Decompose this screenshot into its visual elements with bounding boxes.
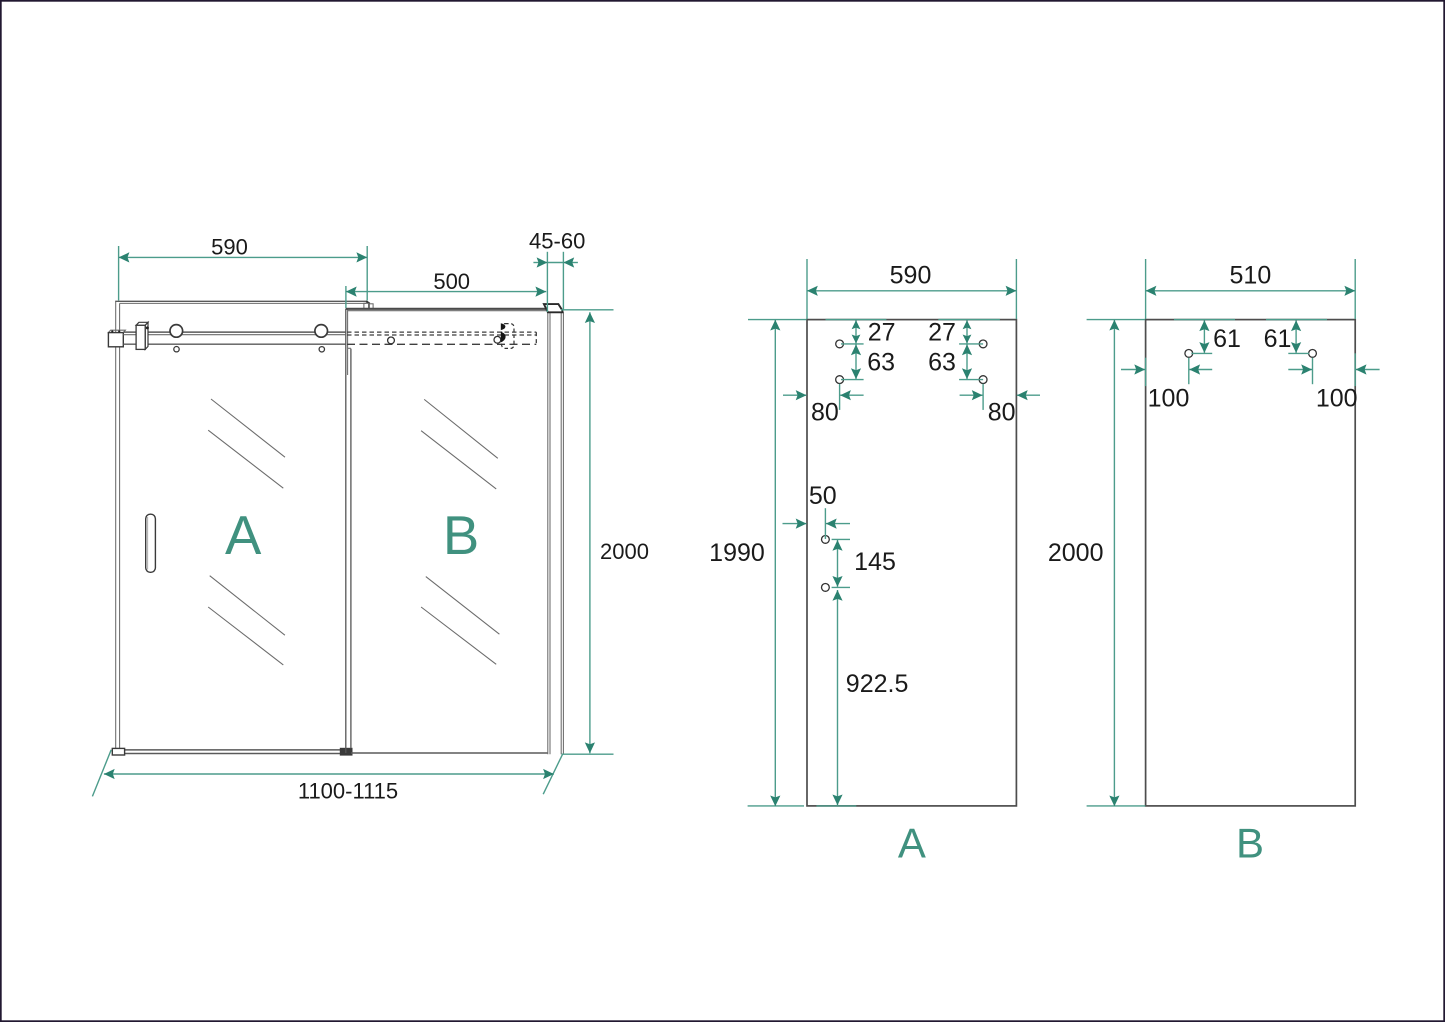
- svg-text:61: 61: [1264, 325, 1292, 353]
- svg-text:B: B: [443, 505, 479, 566]
- svg-text:590: 590: [890, 262, 932, 290]
- svg-text:63: 63: [867, 348, 895, 376]
- svg-text:500: 500: [433, 269, 470, 294]
- svg-text:45-60: 45-60: [529, 228, 585, 253]
- svg-text:1990: 1990: [709, 539, 765, 567]
- svg-text:100: 100: [1316, 385, 1358, 413]
- svg-text:63: 63: [928, 348, 956, 376]
- svg-text:590: 590: [211, 234, 248, 259]
- svg-text:61: 61: [1213, 325, 1241, 353]
- svg-text:27: 27: [928, 318, 956, 346]
- svg-text:1100-1115: 1100-1115: [298, 778, 398, 803]
- svg-text:100: 100: [1148, 385, 1190, 413]
- svg-text:145: 145: [854, 548, 896, 576]
- svg-text:A: A: [225, 505, 262, 566]
- svg-text:80: 80: [811, 399, 839, 427]
- svg-text:B: B: [1236, 820, 1264, 867]
- svg-text:510: 510: [1230, 262, 1272, 290]
- svg-text:27: 27: [868, 318, 896, 346]
- svg-text:2000: 2000: [1048, 539, 1104, 567]
- svg-text:2000: 2000: [600, 539, 649, 564]
- svg-text:80: 80: [988, 399, 1016, 427]
- svg-text:922.5: 922.5: [846, 670, 909, 698]
- svg-text:50: 50: [809, 482, 837, 510]
- svg-text:A: A: [898, 820, 926, 867]
